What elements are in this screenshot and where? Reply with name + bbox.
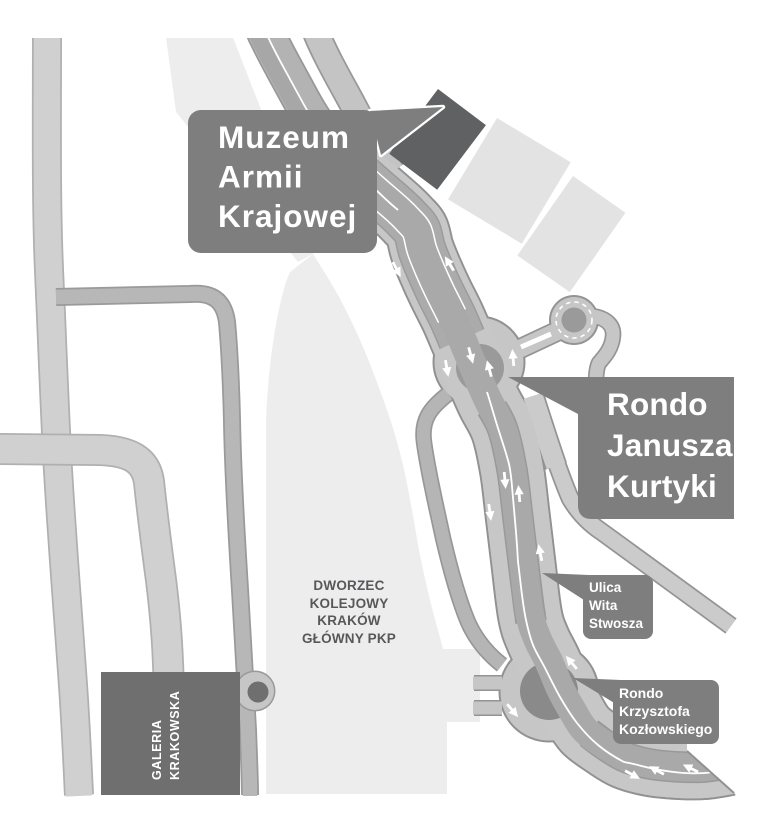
svg-text:KRAKÓW: KRAKÓW xyxy=(317,613,380,628)
svg-text:Wita: Wita xyxy=(589,598,618,613)
svg-text:Kozłowskiego: Kozłowskiego xyxy=(619,721,712,737)
svg-text:Krzysztofa: Krzysztofa xyxy=(619,703,690,719)
svg-text:Muzeum: Muzeum xyxy=(218,119,350,155)
svg-text:GŁÓWNY PKP: GŁÓWNY PKP xyxy=(302,631,396,646)
svg-text:Kurtyki: Kurtyki xyxy=(607,468,717,504)
svg-text:KRAKOWSKA: KRAKOWSKA xyxy=(168,691,182,780)
svg-text:Ulica: Ulica xyxy=(589,580,622,595)
svg-text:KOLEJOWY: KOLEJOWY xyxy=(310,596,389,611)
svg-text:Krajowej: Krajowej xyxy=(218,198,357,234)
svg-text:DWORZEC: DWORZEC xyxy=(313,578,384,593)
svg-text:Rondo: Rondo xyxy=(607,386,708,422)
svg-text:Stwosza: Stwosza xyxy=(589,616,644,631)
svg-text:GALERIA: GALERIA xyxy=(150,720,164,780)
svg-text:Rondo: Rondo xyxy=(619,685,663,701)
svg-text:Armii: Armii xyxy=(218,159,304,195)
svg-text:Janusza: Janusza xyxy=(607,427,733,463)
